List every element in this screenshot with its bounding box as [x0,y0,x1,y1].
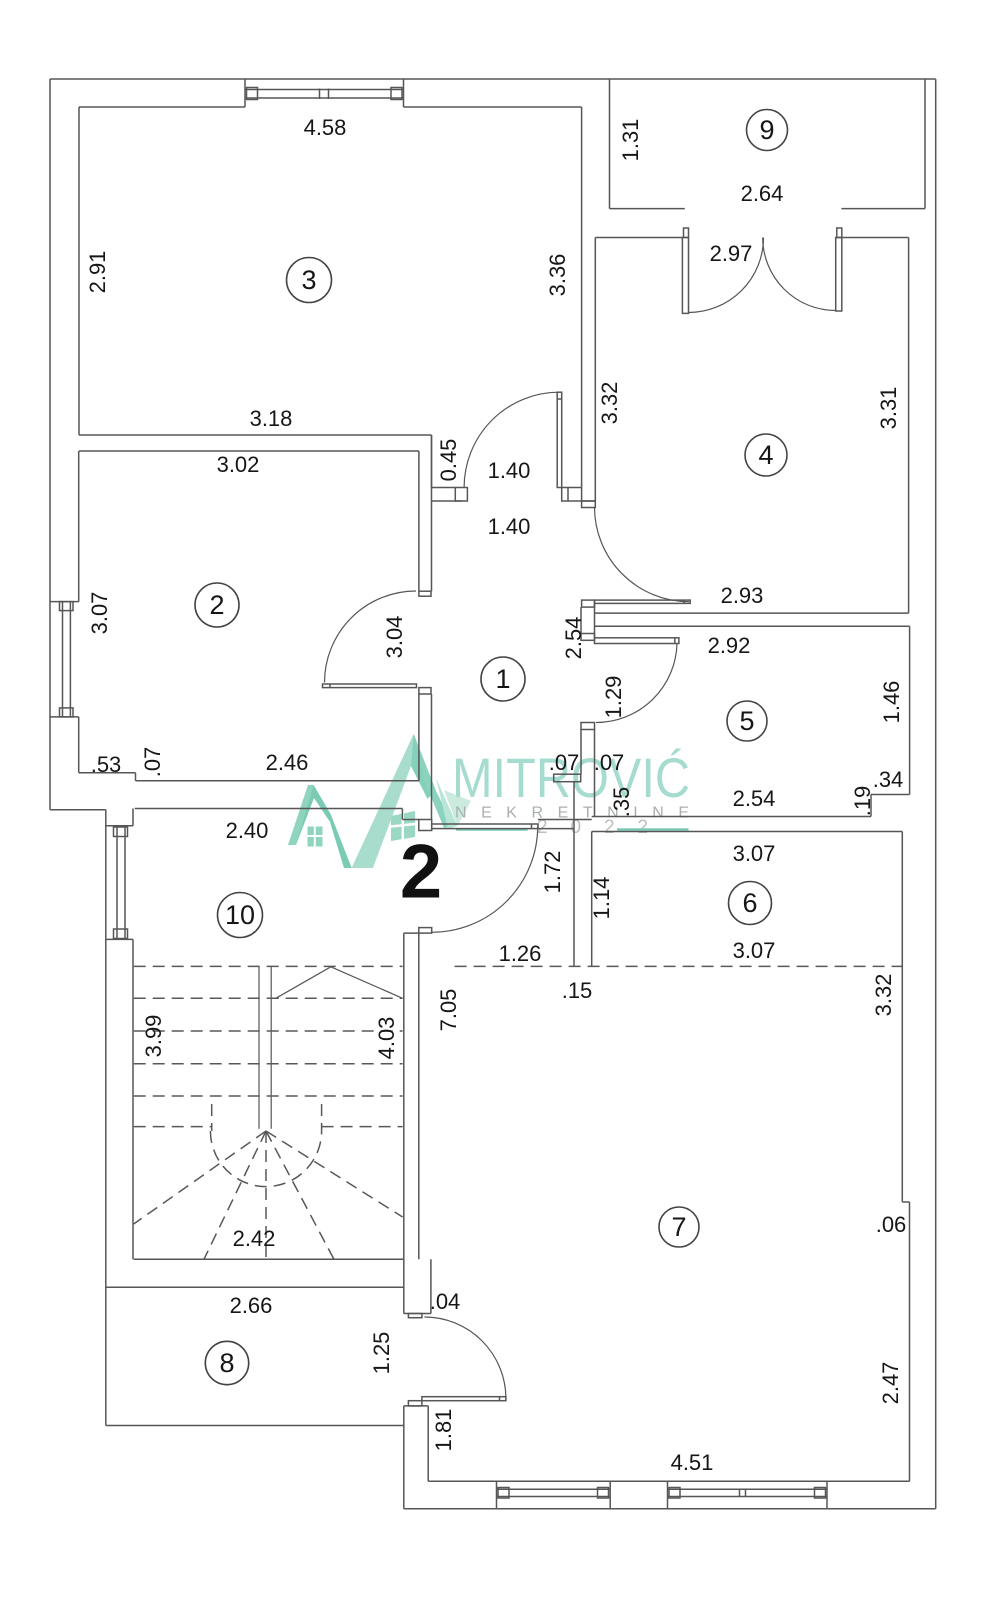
svg-text:.19: .19 [850,786,875,817]
svg-text:3.18: 3.18 [250,406,293,431]
svg-text:4.58: 4.58 [304,115,347,140]
svg-text:2.54: 2.54 [733,786,776,811]
svg-text:3.07: 3.07 [733,841,776,866]
svg-text:.34: .34 [873,767,904,792]
svg-text:1.81: 1.81 [431,1409,456,1452]
svg-text:6: 6 [742,888,757,918]
svg-text:3.31: 3.31 [876,387,901,430]
svg-text:3.32: 3.32 [871,974,896,1017]
svg-text:2.66: 2.66 [230,1293,273,1318]
svg-text:.04: .04 [430,1289,461,1314]
svg-text:3.04: 3.04 [382,616,407,659]
svg-text:3.36: 3.36 [545,254,570,297]
svg-text:2.93: 2.93 [721,583,764,608]
svg-text:2.92: 2.92 [708,633,751,658]
svg-text:3: 3 [301,265,316,295]
svg-text:2.42: 2.42 [233,1226,276,1251]
svg-text:.15: .15 [562,978,593,1003]
svg-text:1.25: 1.25 [369,1332,394,1375]
svg-text:1.29: 1.29 [601,676,626,719]
svg-text:3.07: 3.07 [733,938,776,963]
svg-text:2.91: 2.91 [85,251,110,294]
svg-text:9: 9 [759,115,774,145]
svg-text:2: 2 [209,590,224,620]
svg-text:8: 8 [219,1348,234,1378]
svg-text:0.45: 0.45 [436,439,461,482]
svg-text:1: 1 [495,664,510,694]
svg-text:.35: .35 [609,787,634,818]
svg-text:1.46: 1.46 [879,681,904,724]
svg-text:.06: .06 [876,1212,907,1237]
svg-text:4: 4 [758,440,773,470]
svg-text:3.07: 3.07 [87,592,112,635]
svg-text:1.40: 1.40 [488,514,531,539]
svg-text:1.40: 1.40 [488,458,531,483]
svg-text:5: 5 [739,706,754,736]
svg-text:1.14: 1.14 [589,877,614,920]
svg-text:4.03: 4.03 [374,1017,399,1060]
svg-text:.07: .07 [594,750,625,775]
svg-text:7.05: 7.05 [436,989,461,1032]
svg-text:10: 10 [225,900,255,930]
svg-text:1.31: 1.31 [618,119,643,162]
svg-text:3.02: 3.02 [217,452,260,477]
svg-text:2.47: 2.47 [878,1362,903,1405]
svg-text:3.99: 3.99 [141,1015,166,1058]
svg-text:7: 7 [671,1212,686,1242]
svg-text:.53: .53 [91,752,122,777]
svg-text:1.26: 1.26 [499,941,542,966]
svg-text:2.97: 2.97 [710,241,753,266]
svg-text:2.54: 2.54 [561,617,586,660]
svg-text:2: 2 [400,830,442,915]
svg-text:2.40: 2.40 [226,818,269,843]
svg-text:1.72: 1.72 [540,851,565,894]
svg-text:.07: .07 [549,750,580,775]
svg-text:4.51: 4.51 [671,1450,714,1475]
svg-text:2.46: 2.46 [266,750,309,775]
svg-text:2.64: 2.64 [741,181,784,206]
svg-text:3.32: 3.32 [597,382,622,425]
svg-text:.07: .07 [140,747,165,778]
